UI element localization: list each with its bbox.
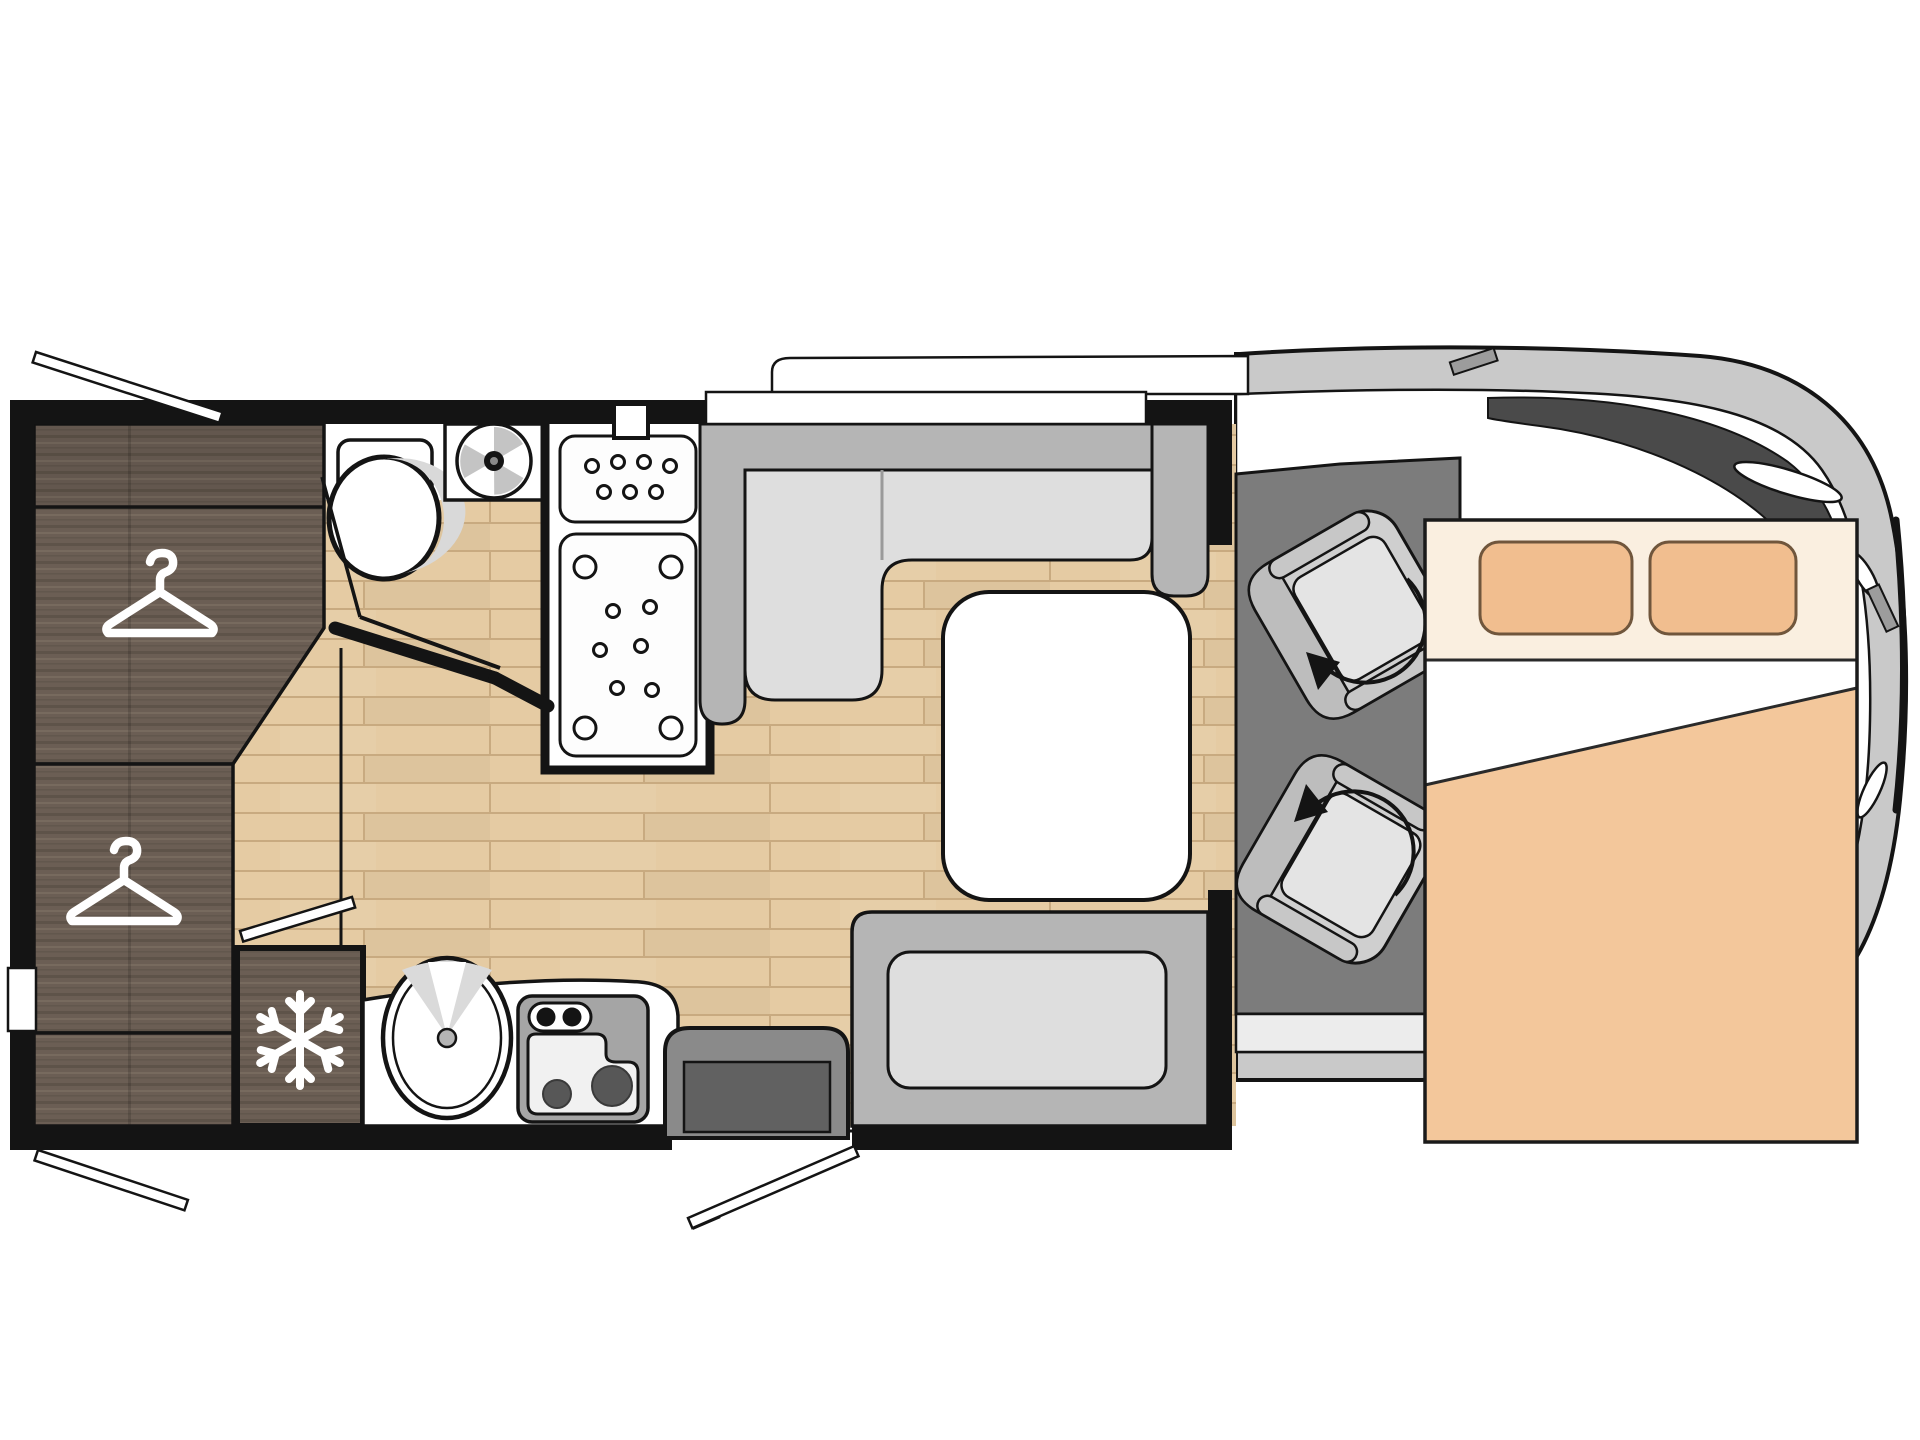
shower-tray-upper bbox=[560, 436, 696, 522]
wall-bottom-left bbox=[10, 1126, 672, 1150]
stove-hob bbox=[518, 996, 648, 1122]
rear-bench-cushion bbox=[888, 952, 1166, 1088]
shower bbox=[545, 418, 710, 770]
wall-right-stub-top bbox=[1208, 400, 1232, 545]
stove-knob bbox=[537, 1008, 556, 1027]
window-strip-dinette bbox=[706, 392, 1146, 424]
vehicle-roofline-band bbox=[772, 356, 1248, 394]
bed-pillow bbox=[1480, 542, 1632, 634]
door-swing-bottom-left bbox=[35, 1150, 188, 1210]
vent-fan bbox=[445, 424, 543, 503]
stove-burner-small bbox=[543, 1080, 571, 1108]
motorhome-floorplan bbox=[0, 0, 1920, 1440]
shower-roof-notch bbox=[614, 404, 648, 438]
overcab-bed bbox=[1425, 520, 1857, 1142]
wall-right-stub-bottom bbox=[1208, 890, 1232, 1150]
kitchen bbox=[363, 958, 678, 1126]
stove-burner-large bbox=[592, 1066, 632, 1106]
entry-step bbox=[665, 1028, 848, 1138]
wall-left-window-gap bbox=[8, 968, 36, 1031]
door-swing-entry bbox=[688, 1145, 860, 1230]
floorplan-canvas bbox=[0, 0, 1920, 1440]
sink-drain bbox=[438, 1029, 456, 1047]
dinette-bench-right-cap bbox=[1152, 424, 1208, 596]
entry-step-inner bbox=[684, 1062, 830, 1132]
rear-bench bbox=[852, 912, 1208, 1126]
wardrobe-bottom-block bbox=[34, 1033, 233, 1126]
wall-top bbox=[10, 400, 712, 424]
wardrobe-middle-block bbox=[34, 764, 233, 1033]
kitchen-sink bbox=[383, 958, 511, 1118]
bed-pillow bbox=[1650, 542, 1796, 634]
dinette-table bbox=[943, 592, 1190, 900]
fridge bbox=[237, 948, 363, 1126]
wall-bottom-right bbox=[852, 1126, 1232, 1150]
stove-knob bbox=[563, 1008, 582, 1027]
wall-left-upper bbox=[10, 400, 34, 968]
cab-skirt-band bbox=[1236, 1014, 1452, 1052]
wardrobe-top-shade bbox=[34, 424, 324, 507]
